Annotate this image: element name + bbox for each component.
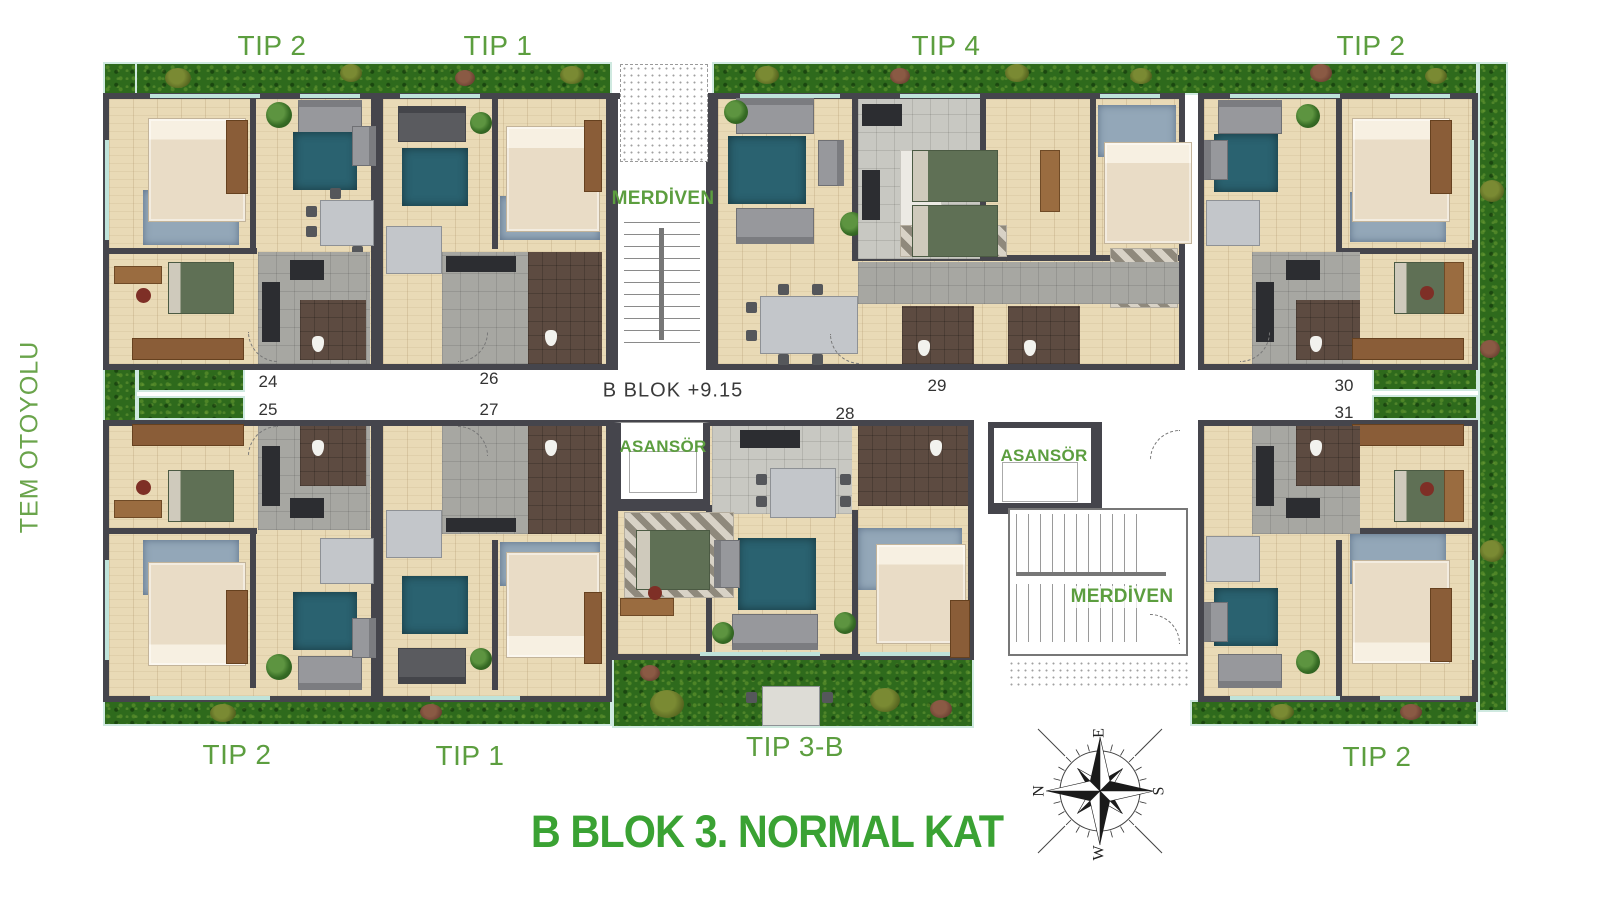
stove <box>1286 260 1320 280</box>
hatch-area <box>1008 660 1188 686</box>
bush <box>1130 68 1152 84</box>
partition-wall <box>109 248 257 254</box>
partition-wall <box>492 540 498 690</box>
dining-table <box>386 510 442 558</box>
bush <box>1270 704 1294 720</box>
compass-north: N <box>1031 785 1048 797</box>
window <box>1390 94 1450 98</box>
floor-plan-canvas: TEM OTOYOLU <box>0 0 1600 911</box>
kitchen-counter <box>1256 446 1274 506</box>
stairs-bottom-label: MERDİVEN <box>1069 586 1176 608</box>
chair <box>812 354 823 365</box>
partition-wall <box>250 99 256 254</box>
grass-strip-bottom-left <box>103 700 612 726</box>
desk <box>1040 150 1060 212</box>
elevator-right <box>988 422 1102 514</box>
living-rug <box>402 576 468 634</box>
partition-wall <box>1336 540 1342 698</box>
window <box>300 94 360 98</box>
window <box>740 94 840 98</box>
chair <box>330 188 341 199</box>
bush <box>455 70 475 86</box>
armchair <box>714 540 740 588</box>
sofa <box>736 208 814 244</box>
grass-band-left-upper <box>137 368 245 392</box>
grass-strip-right <box>1478 62 1508 712</box>
window <box>700 652 820 656</box>
elevator-car-outline <box>1002 462 1078 502</box>
bush <box>1480 340 1500 358</box>
window <box>430 696 520 700</box>
bathroom <box>1296 426 1360 486</box>
plant <box>470 648 492 670</box>
elevator-left-label: ASANSÖR <box>619 437 706 457</box>
door-arc <box>1150 430 1180 460</box>
compass-rose: E N S W <box>1018 709 1182 873</box>
cabinet <box>132 424 244 446</box>
bed-single <box>912 150 998 202</box>
compass-south: S <box>1151 787 1168 796</box>
desk-chair <box>1420 482 1434 496</box>
page-title: B BLOK 3. NORMAL KAT <box>531 806 1003 858</box>
apartment-number-28: 28 <box>836 404 855 424</box>
desk <box>620 598 674 616</box>
bush <box>1480 180 1504 202</box>
apartment-number-26: 26 <box>480 369 499 389</box>
wardrobe <box>950 600 970 658</box>
kitchen-counter <box>446 518 516 532</box>
desk <box>114 500 162 518</box>
label-tip2-top-left: TIP 2 <box>238 30 307 62</box>
bathroom <box>1296 300 1360 360</box>
label-tip4: TIP 4 <box>912 30 981 62</box>
chair <box>822 692 833 703</box>
window <box>1470 140 1474 240</box>
bush <box>650 690 684 718</box>
window <box>900 94 980 98</box>
hall-floor <box>858 262 1179 304</box>
partition-wall <box>1090 99 1096 259</box>
chair <box>756 474 767 485</box>
elevator-right-label: ASANSÖR <box>1000 446 1087 466</box>
wardrobe <box>226 590 248 664</box>
bush <box>420 704 442 720</box>
desk-chair <box>136 288 151 303</box>
label-tip2-bottom-right: TIP 2 <box>1343 741 1412 773</box>
grass-band-left-lower <box>137 396 245 420</box>
armchair <box>818 140 844 186</box>
bush <box>1005 64 1029 82</box>
chair <box>746 302 757 313</box>
stair-rail <box>1016 572 1166 576</box>
window <box>1100 94 1160 98</box>
label-tip2-top-right: TIP 2 <box>1337 30 1406 62</box>
bush <box>640 665 660 681</box>
partition-wall <box>492 99 498 249</box>
desk-chair <box>1420 286 1434 300</box>
partition-wall <box>1336 99 1342 254</box>
bush <box>1310 64 1332 82</box>
chair <box>746 330 757 341</box>
plant <box>266 654 292 680</box>
plant <box>266 102 292 128</box>
bed-single <box>168 262 234 314</box>
stair-rail <box>659 228 664 340</box>
armchair <box>1204 602 1228 642</box>
plant <box>1296 650 1320 674</box>
armchair <box>352 618 376 658</box>
stove <box>862 104 902 126</box>
bed <box>1104 142 1192 244</box>
bathroom <box>902 306 974 364</box>
armchair <box>1204 140 1228 180</box>
plant <box>724 100 748 124</box>
kitchen-counter <box>740 430 800 448</box>
bathroom <box>528 252 602 364</box>
dining-table <box>386 226 442 274</box>
stair-landing-hatch <box>620 64 708 162</box>
bathroom <box>1008 306 1080 364</box>
desk-chair <box>648 586 662 600</box>
sofa <box>1218 100 1282 134</box>
desk <box>114 266 162 284</box>
apartment-number-31: 31 <box>1335 403 1354 423</box>
grass-band-right-lower <box>1372 395 1478 420</box>
bed-single <box>168 470 234 522</box>
elevator-car-outline <box>629 451 697 493</box>
dining-table <box>1206 200 1260 246</box>
bathroom <box>528 426 602 534</box>
bathroom <box>300 300 366 360</box>
bush <box>560 66 584 84</box>
sofa <box>736 98 814 134</box>
desk <box>1444 470 1464 522</box>
sofa <box>398 106 466 142</box>
chair <box>756 496 767 507</box>
chair <box>840 474 851 485</box>
wardrobe <box>1430 588 1452 662</box>
chair <box>778 284 789 295</box>
plant <box>470 112 492 134</box>
label-tip1-top: TIP 1 <box>464 30 533 62</box>
sofa <box>732 614 818 650</box>
sofa <box>398 648 466 684</box>
apartment-number-30: 30 <box>1335 376 1354 396</box>
compass-east: E <box>1091 728 1108 738</box>
label-tip3b: TIP 3-B <box>746 731 844 763</box>
desk-chair <box>136 480 151 495</box>
apartment-number-24: 24 <box>259 372 278 392</box>
window <box>1470 560 1474 660</box>
wardrobe <box>226 120 248 194</box>
dining-table <box>770 468 836 518</box>
chair <box>746 692 757 703</box>
cabinet <box>1352 338 1464 360</box>
wardrobe <box>584 120 602 192</box>
living-rug <box>728 136 806 204</box>
label-tip2-bottom-left: TIP 2 <box>203 739 272 771</box>
stove <box>290 260 324 280</box>
bush <box>340 64 362 82</box>
wardrobe <box>584 592 602 664</box>
sofa <box>1218 654 1282 688</box>
wardrobe <box>1430 120 1452 194</box>
window <box>105 140 109 240</box>
block-level-label: B BLOK +9.15 <box>603 380 743 403</box>
label-tip1-bottom: TIP 1 <box>436 740 505 772</box>
window <box>1230 696 1340 700</box>
bush <box>930 700 952 718</box>
chair <box>778 354 789 365</box>
stove <box>290 498 324 518</box>
chair <box>306 226 317 237</box>
chair <box>812 284 823 295</box>
plant <box>712 622 734 644</box>
bed-single <box>636 530 710 590</box>
apartment-number-29: 29 <box>928 376 947 396</box>
window <box>1380 696 1460 700</box>
armchair <box>352 126 376 166</box>
compass-west: W <box>1091 845 1108 861</box>
window <box>105 560 109 660</box>
cabinet <box>132 338 244 360</box>
desk <box>1444 262 1464 314</box>
stairs-bottom-steps <box>1016 514 1138 572</box>
plant <box>834 612 856 634</box>
cabinet <box>1352 424 1464 446</box>
bush <box>210 704 236 722</box>
bush <box>1480 540 1504 562</box>
window <box>400 94 480 98</box>
bush <box>870 688 900 712</box>
bush <box>755 66 779 84</box>
dining-table <box>320 538 374 584</box>
partition-wall <box>250 528 256 688</box>
chair <box>840 496 851 507</box>
kitchen-counter <box>862 170 880 220</box>
living-rug <box>738 538 816 610</box>
bathroom <box>858 426 968 506</box>
bush <box>1425 68 1447 84</box>
grass-strip-bottom-right <box>1190 700 1478 726</box>
sofa <box>298 656 362 690</box>
bathroom <box>300 426 366 486</box>
living-rug <box>402 148 468 206</box>
living-rug <box>293 592 357 650</box>
chair <box>306 206 317 217</box>
bed-single <box>912 205 998 257</box>
dining-table <box>1206 536 1260 582</box>
stairs-top-label: MERDİVEN <box>612 188 715 210</box>
partition-wall <box>109 528 257 534</box>
apartment-number-25: 25 <box>259 400 278 420</box>
bush <box>890 68 910 84</box>
apartment-number-27: 27 <box>480 400 499 420</box>
garden-table <box>762 686 820 726</box>
elevator-left <box>614 422 710 506</box>
kitchen-counter <box>446 256 516 272</box>
bush <box>165 68 191 88</box>
window <box>860 652 950 656</box>
grass-strip-top-right <box>712 62 1478 95</box>
living-rug <box>293 132 357 190</box>
window <box>150 696 270 700</box>
dining-table <box>320 200 374 246</box>
window <box>150 94 260 98</box>
window <box>1230 94 1340 98</box>
plant <box>1296 104 1320 128</box>
road-label: TEM OTOYOLU <box>16 341 45 534</box>
stove <box>1286 498 1320 518</box>
bush <box>1400 704 1422 720</box>
